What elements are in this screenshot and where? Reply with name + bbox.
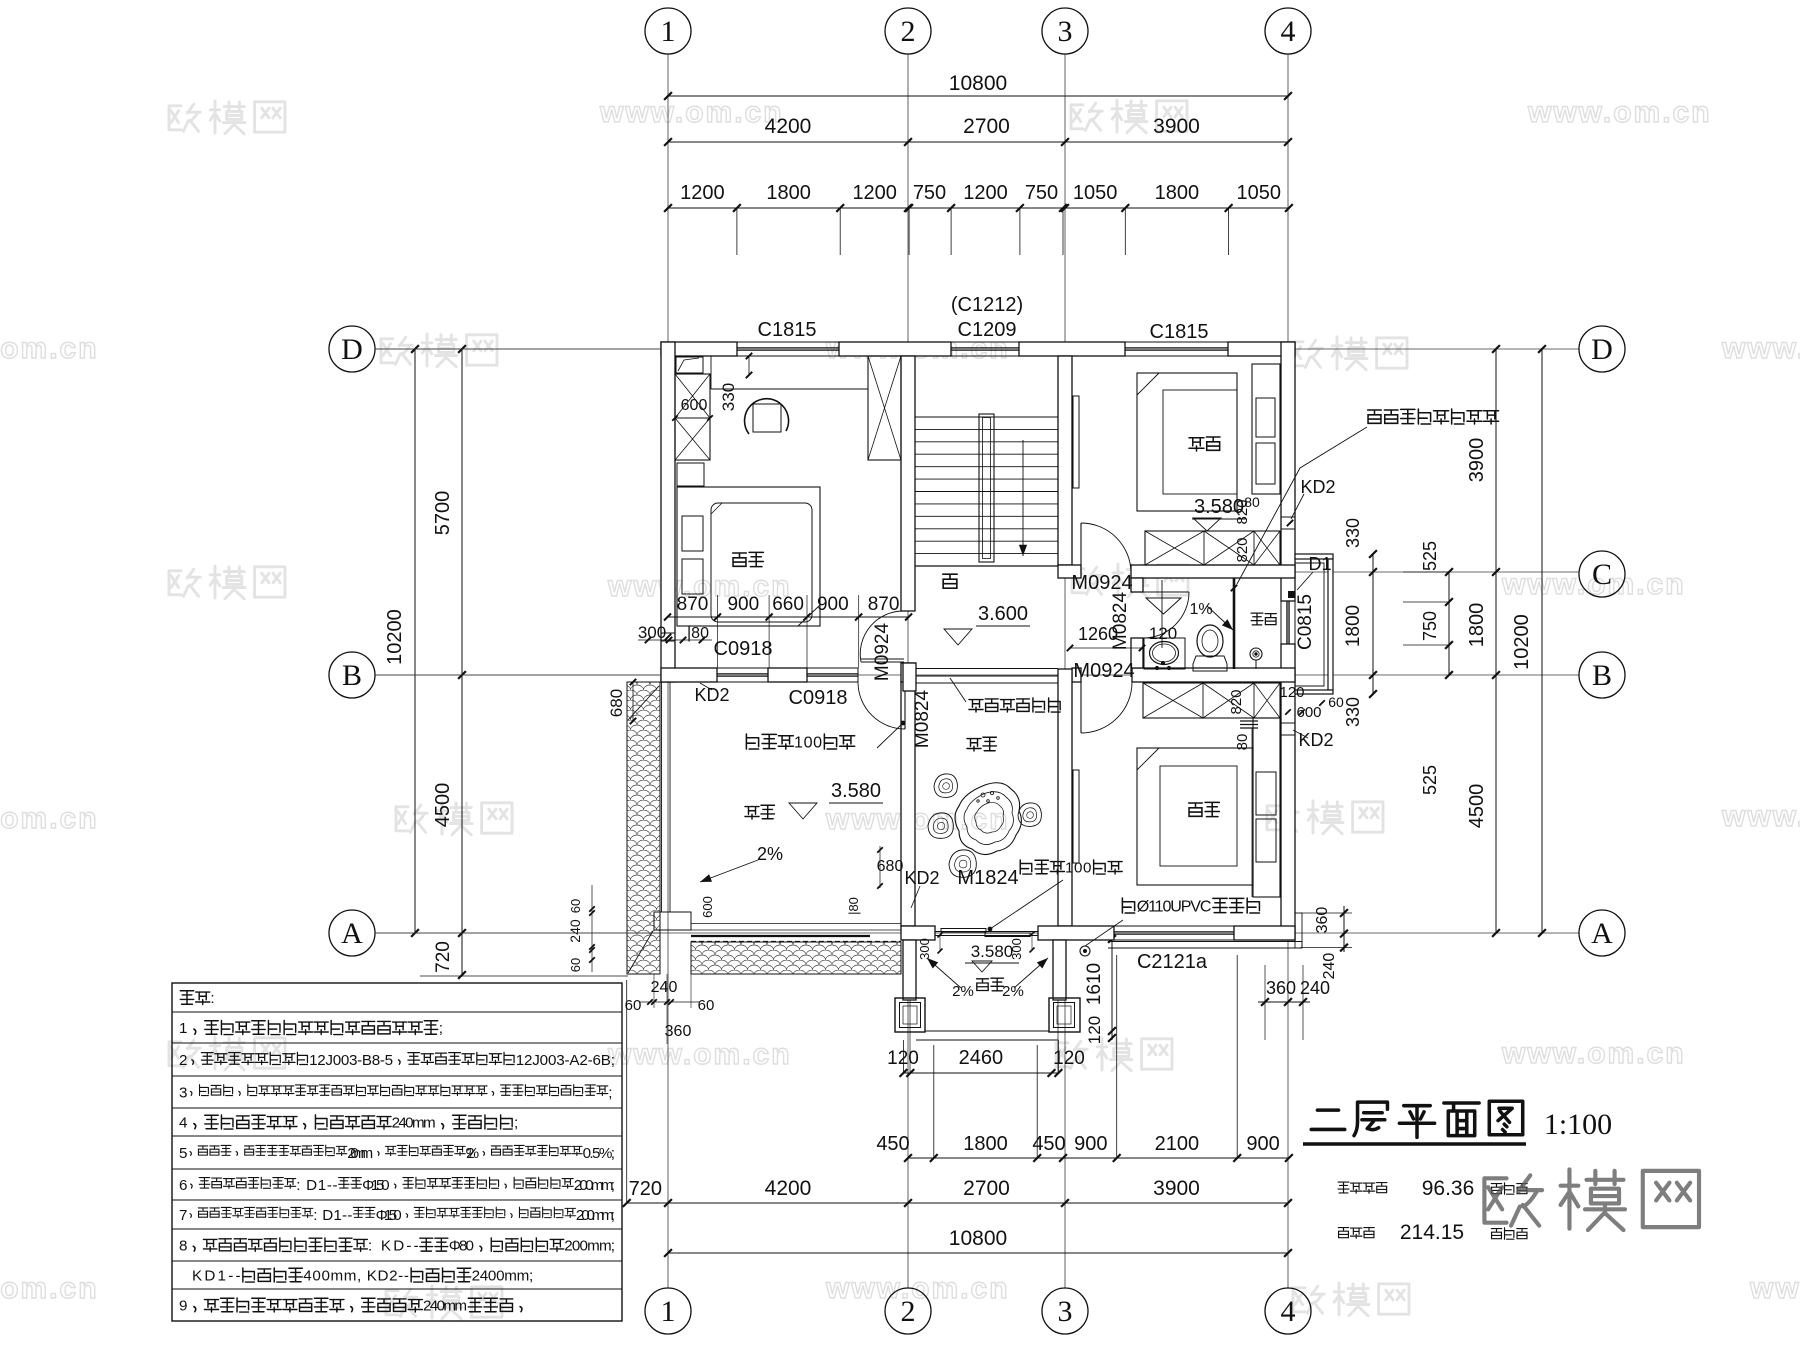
svg-text:2700: 2700 bbox=[963, 1177, 1010, 1200]
svg-text:KD2: KD2 bbox=[1300, 477, 1335, 497]
svg-text:1050: 1050 bbox=[1073, 182, 1118, 204]
svg-text:1: 1 bbox=[179, 1020, 187, 1037]
svg-text:10200: 10200 bbox=[1511, 614, 1533, 670]
svg-text:1200: 1200 bbox=[852, 182, 897, 204]
svg-text:300: 300 bbox=[917, 938, 932, 960]
svg-text:10800: 10800 bbox=[949, 72, 1007, 95]
svg-text:330: 330 bbox=[1343, 697, 1363, 727]
svg-text:;: ; bbox=[439, 1020, 443, 1037]
svg-text:96.36: 96.36 bbox=[1422, 1177, 1475, 1200]
svg-text:214.15: 214.15 bbox=[1400, 1221, 1464, 1244]
svg-text:(C1212): (C1212) bbox=[951, 294, 1023, 316]
svg-text:60: 60 bbox=[698, 997, 715, 1014]
svg-text:820: 820 bbox=[1228, 689, 1245, 714]
svg-text:2400mm;: 2400mm; bbox=[472, 1267, 534, 1284]
svg-text:120: 120 bbox=[887, 1048, 919, 1069]
svg-text:www.om.cn: www.om.cn bbox=[1749, 1272, 1800, 1305]
svg-text:9: 9 bbox=[179, 1297, 187, 1314]
svg-text:600: 600 bbox=[700, 896, 715, 918]
svg-text:330: 330 bbox=[1343, 518, 1363, 548]
svg-text:4500: 4500 bbox=[1466, 784, 1488, 829]
svg-text:200mm;: 200mm; bbox=[576, 1207, 615, 1224]
svg-text:Φ150: Φ150 bbox=[376, 1207, 402, 1224]
svg-text:8: 8 bbox=[179, 1237, 187, 1254]
svg-text:1%: 1% bbox=[1189, 601, 1212, 618]
svg-text:2%: 2% bbox=[466, 1145, 480, 1162]
svg-text:720: 720 bbox=[433, 941, 454, 973]
svg-text:80: 80 bbox=[1244, 494, 1260, 510]
svg-text:240: 240 bbox=[651, 979, 678, 996]
svg-text:2: 2 bbox=[901, 1295, 916, 1328]
svg-text:5700: 5700 bbox=[432, 491, 454, 536]
svg-text:240: 240 bbox=[1321, 953, 1338, 980]
svg-text:100: 100 bbox=[1065, 859, 1091, 876]
svg-text:120: 120 bbox=[1279, 684, 1304, 701]
svg-text:C1815: C1815 bbox=[1150, 321, 1209, 343]
svg-text:900: 900 bbox=[817, 594, 849, 615]
svg-text::: : bbox=[210, 990, 214, 1007]
svg-text:3900: 3900 bbox=[1466, 438, 1488, 483]
svg-text:www.om.cn: www.om.cn bbox=[0, 802, 99, 835]
svg-text:450: 450 bbox=[876, 1133, 909, 1155]
svg-text:C1815: C1815 bbox=[758, 319, 817, 341]
svg-text:KD2: KD2 bbox=[694, 685, 729, 705]
svg-text:: D1--: : D1-- bbox=[296, 1177, 337, 1194]
svg-text:C2121a: C2121a bbox=[1137, 951, 1208, 973]
svg-text:750: 750 bbox=[1420, 611, 1440, 641]
svg-text:240mm: 240mm bbox=[392, 1114, 436, 1131]
svg-text:;: ; bbox=[514, 1114, 518, 1131]
svg-text:450: 450 bbox=[1032, 1133, 1065, 1155]
svg-text:360: 360 bbox=[1266, 978, 1296, 998]
svg-text:525: 525 bbox=[1420, 765, 1440, 795]
svg-text:120: 120 bbox=[1053, 1048, 1085, 1069]
svg-text:3.580: 3.580 bbox=[831, 780, 881, 802]
svg-text:12J003-B8-5: 12J003-B8-5 bbox=[309, 1052, 393, 1069]
svg-text:400mm, KD2--: 400mm, KD2-- bbox=[303, 1267, 409, 1284]
svg-text:7: 7 bbox=[179, 1207, 187, 1224]
svg-text:60: 60 bbox=[568, 899, 583, 913]
svg-text:C1209: C1209 bbox=[958, 319, 1017, 341]
svg-text:680: 680 bbox=[877, 858, 904, 875]
svg-text:820: 820 bbox=[1234, 537, 1251, 562]
svg-text:1800: 1800 bbox=[1466, 603, 1488, 648]
svg-text:660: 660 bbox=[772, 594, 804, 615]
svg-text:525: 525 bbox=[1420, 541, 1440, 571]
svg-text:A: A bbox=[1591, 917, 1613, 950]
svg-text:300: 300 bbox=[638, 623, 666, 642]
svg-text:M0824: M0824 bbox=[1110, 592, 1131, 651]
svg-text:KD2: KD2 bbox=[904, 868, 939, 888]
svg-text:2%: 2% bbox=[952, 983, 974, 1000]
svg-text:20mm: 20mm bbox=[347, 1145, 373, 1162]
svg-text:360: 360 bbox=[665, 1023, 692, 1040]
svg-text:0.5%;: 0.5%; bbox=[583, 1145, 615, 1162]
svg-text:B: B bbox=[1592, 659, 1612, 692]
svg-text:KD2: KD2 bbox=[1298, 730, 1333, 750]
svg-text:870: 870 bbox=[868, 594, 900, 615]
svg-text:3900: 3900 bbox=[1153, 1177, 1200, 1200]
svg-text:A: A bbox=[341, 917, 363, 950]
svg-text:1:100: 1:100 bbox=[1544, 1108, 1612, 1141]
svg-text:C0815: C0815 bbox=[1295, 594, 1316, 650]
svg-text:80: 80 bbox=[1234, 734, 1251, 751]
svg-text:www.om.cn: www.om.cn bbox=[0, 1272, 99, 1305]
svg-text:60: 60 bbox=[568, 958, 583, 972]
svg-text:120: 120 bbox=[1149, 624, 1177, 643]
svg-text:2460: 2460 bbox=[959, 1047, 1004, 1069]
svg-text:330: 330 bbox=[719, 383, 738, 411]
svg-text:4200: 4200 bbox=[765, 115, 812, 138]
svg-text:|80: |80 bbox=[687, 625, 709, 642]
svg-text:www.om.cn: www.om.cn bbox=[1721, 800, 1800, 833]
svg-text:240: 240 bbox=[567, 919, 583, 943]
svg-text:M0824: M0824 bbox=[912, 690, 933, 749]
svg-text:4: 4 bbox=[1281, 1295, 1296, 1328]
svg-text:;: ; bbox=[608, 1084, 612, 1101]
svg-text:240: 240 bbox=[1300, 978, 1330, 998]
svg-text:750: 750 bbox=[1025, 182, 1058, 204]
svg-text:300: 300 bbox=[1009, 938, 1024, 960]
svg-text:D1: D1 bbox=[1308, 554, 1331, 574]
svg-text:2%: 2% bbox=[757, 844, 783, 864]
svg-text:3: 3 bbox=[179, 1084, 187, 1101]
svg-text:1610: 1610 bbox=[1084, 963, 1105, 1005]
svg-text:6: 6 bbox=[179, 1177, 187, 1194]
svg-text:1200: 1200 bbox=[680, 182, 725, 204]
svg-text:www.om.cn: www.om.cn bbox=[825, 1272, 1010, 1305]
svg-text:240mm: 240mm bbox=[423, 1297, 467, 1314]
svg-text:3.580: 3.580 bbox=[971, 942, 1014, 961]
svg-text:www.om.cn: www.om.cn bbox=[0, 332, 99, 365]
svg-text:3900: 3900 bbox=[1153, 115, 1200, 138]
svg-text:D: D bbox=[1591, 333, 1613, 366]
svg-text:200mm;: 200mm; bbox=[564, 1237, 615, 1254]
svg-text:12J003-A2-6B;: 12J003-A2-6B; bbox=[516, 1052, 615, 1069]
svg-text:870: 870 bbox=[677, 594, 709, 615]
svg-text:1800: 1800 bbox=[1343, 605, 1364, 647]
svg-text:M0924: M0924 bbox=[1073, 660, 1134, 682]
svg-text:4: 4 bbox=[179, 1114, 187, 1131]
svg-text:M0924: M0924 bbox=[872, 623, 893, 682]
svg-text:2%: 2% bbox=[1002, 983, 1024, 1000]
svg-text:600: 600 bbox=[681, 397, 708, 414]
svg-text:1: 1 bbox=[661, 1295, 676, 1328]
svg-text:720: 720 bbox=[629, 1178, 662, 1200]
svg-text:1800: 1800 bbox=[766, 182, 811, 204]
svg-text:1200: 1200 bbox=[963, 182, 1008, 204]
svg-text:www.om.cn: www.om.cn bbox=[1501, 1037, 1686, 1070]
svg-text:900: 900 bbox=[1246, 1133, 1279, 1155]
svg-text:www.om.cn: www.om.cn bbox=[599, 96, 784, 129]
svg-text:60: 60 bbox=[625, 997, 642, 1014]
svg-text:M0924: M0924 bbox=[1071, 572, 1132, 594]
svg-text:2: 2 bbox=[179, 1052, 187, 1069]
svg-text:360: 360 bbox=[1314, 907, 1331, 934]
svg-text:M1824: M1824 bbox=[957, 867, 1018, 889]
svg-text:www.om.cn: www.om.cn bbox=[1721, 332, 1800, 365]
svg-text:Φ150: Φ150 bbox=[362, 1177, 390, 1194]
svg-text:750: 750 bbox=[913, 182, 946, 204]
svg-text:C0918: C0918 bbox=[714, 638, 773, 660]
svg-text:2700: 2700 bbox=[963, 115, 1010, 138]
svg-text:: KD--: : KD-- bbox=[368, 1237, 419, 1254]
svg-text:B: B bbox=[342, 659, 362, 692]
svg-text:www.om.cn: www.om.cn bbox=[1527, 96, 1712, 129]
svg-text:|80: |80 bbox=[846, 897, 861, 915]
svg-text:900: 900 bbox=[727, 594, 759, 615]
svg-text:10800: 10800 bbox=[949, 1227, 1007, 1250]
svg-text:2: 2 bbox=[901, 15, 916, 48]
svg-text:4500: 4500 bbox=[432, 783, 454, 828]
svg-text:4200: 4200 bbox=[765, 1177, 812, 1200]
svg-text:Φ80: Φ80 bbox=[449, 1237, 474, 1254]
svg-text:120: 120 bbox=[1085, 1016, 1104, 1044]
svg-text:2100: 2100 bbox=[1155, 1133, 1200, 1155]
svg-text:680: 680 bbox=[607, 689, 626, 717]
svg-text:1050: 1050 bbox=[1237, 182, 1282, 204]
svg-text:1800: 1800 bbox=[1155, 182, 1200, 204]
svg-text:100: 100 bbox=[794, 733, 822, 751]
svg-text:60: 60 bbox=[1328, 694, 1344, 710]
svg-text:3: 3 bbox=[1058, 1295, 1073, 1328]
svg-text:900: 900 bbox=[1074, 1133, 1107, 1155]
svg-text:Ø110UPVC: Ø110UPVC bbox=[1137, 897, 1212, 915]
svg-text:3: 3 bbox=[1058, 15, 1073, 48]
svg-text:KD1--: KD1-- bbox=[179, 1267, 241, 1284]
svg-text:1: 1 bbox=[661, 15, 676, 48]
svg-text:C: C bbox=[1592, 558, 1612, 591]
svg-text:D: D bbox=[341, 333, 363, 366]
svg-text:10200: 10200 bbox=[384, 609, 406, 665]
svg-text:5: 5 bbox=[179, 1145, 187, 1162]
svg-text:C0918: C0918 bbox=[789, 687, 848, 709]
svg-text:1800: 1800 bbox=[963, 1133, 1008, 1155]
svg-text:4: 4 bbox=[1281, 15, 1296, 48]
svg-text:200mm;: 200mm; bbox=[574, 1177, 615, 1194]
svg-text:www.om.cn: www.om.cn bbox=[607, 1038, 792, 1071]
svg-text:3.600: 3.600 bbox=[978, 603, 1028, 625]
svg-text:: D1--: : D1-- bbox=[313, 1207, 352, 1224]
